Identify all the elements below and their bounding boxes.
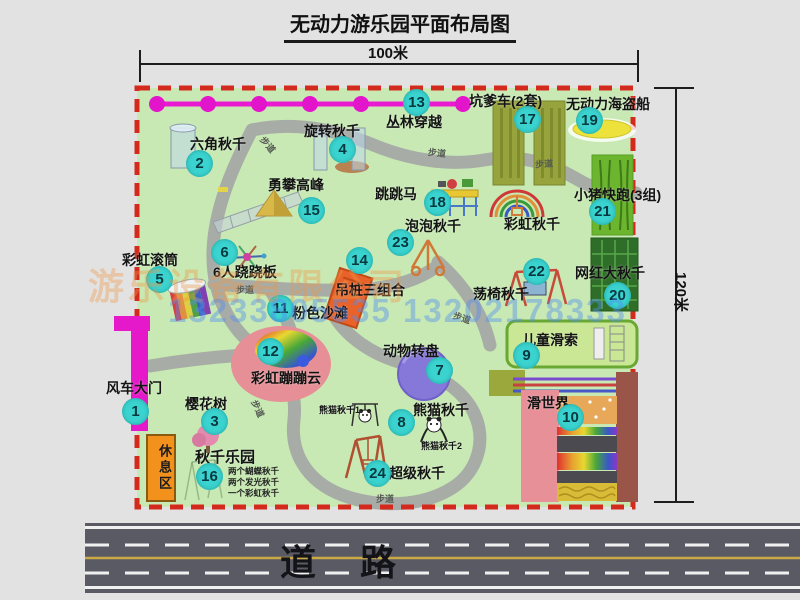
badge-21: 21 [589, 198, 616, 225]
label-rotating-swing: 旋转秋千 [304, 121, 360, 141]
badge-10: 10 [557, 404, 584, 431]
label-rainbow-roller: 彩虹滚筒 [122, 250, 178, 270]
badge-22: 22 [523, 258, 550, 285]
badge-24: 24 [364, 460, 391, 487]
label-windmill-gate: 风车大门 [106, 378, 162, 398]
walkway-label-4: 步道 [236, 283, 254, 296]
swing-park-details: 两个蝴蝶秋千 两个发光秋千 一个彩虹秋千 [228, 466, 279, 499]
road-label: 道路 [280, 534, 440, 586]
label-super-swing: 超级秋千 [389, 463, 445, 483]
label-pink-beach: 粉色沙滩 [292, 303, 348, 323]
badge-8: 8 [388, 409, 415, 436]
road [85, 523, 800, 593]
park-plan-screenshot: 无动力游乐园平面布局图 100米 120米 游乐设备有限公司 132338055… [0, 0, 800, 600]
walkway-label-7: 步道 [376, 492, 394, 505]
badge-16: 16 [196, 463, 223, 490]
badge-23: 23 [387, 229, 414, 256]
swing-park-detail-1: 两个蝴蝶秋千 [228, 466, 279, 477]
badge-13: 13 [403, 89, 430, 116]
badge-2: 2 [186, 150, 213, 177]
badge-20: 20 [604, 282, 631, 309]
label-animal-turntable: 动物转盘 [383, 341, 439, 361]
badge-17: 17 [514, 106, 541, 133]
width-dimension-label: 100米 [368, 42, 408, 63]
badge-1: 1 [122, 398, 149, 425]
label-panda-swing-2: 熊猫秋千2 [421, 439, 462, 452]
badge-19: 19 [576, 107, 603, 134]
pink-beach-icon [231, 326, 331, 402]
badge-3: 3 [201, 408, 228, 435]
badge-11: 11 [267, 295, 294, 322]
badge-12: 12 [257, 338, 284, 365]
badge-5: 5 [146, 266, 173, 293]
rest-area-box: 休息区 [146, 434, 176, 502]
label-jumping-horse: 跳跳马 [375, 184, 417, 204]
badge-6: 6 [211, 239, 238, 266]
badge-14: 14 [346, 247, 373, 274]
badge-7: 7 [426, 357, 453, 384]
label-bubble-swing: 泡泡秋千 [405, 216, 461, 236]
label-climbing-peak: 勇攀高峰 [268, 175, 324, 195]
label-hanging-posts: 吊桩三组合 [335, 280, 405, 300]
label-swing-chair: 荡椅秋千 [473, 284, 529, 304]
page-title: 无动力游乐园平面布局图 [284, 8, 516, 43]
swing-park-detail-3: 一个彩虹秋千 [228, 488, 279, 499]
label-panda-swing-1: 熊猫秋千1 [319, 403, 360, 416]
badge-4: 4 [329, 136, 356, 163]
label-rainbow-arch-swing: 彩虹秋千 [504, 214, 560, 234]
label-big-swing: 网红大秋千 [575, 263, 645, 283]
walkway-label-3: 步道 [535, 156, 554, 170]
badge-9: 9 [513, 342, 540, 369]
walkway-label-2: 步道 [427, 145, 446, 160]
height-dimension-label: 120米 [671, 272, 692, 312]
label-rainbow-cloud: 彩虹蹦蹦云 [251, 368, 321, 388]
label-piggy-run: 小猪快跑(3组) [574, 185, 661, 205]
badge-15: 15 [298, 197, 325, 224]
label-panda-swing: 熊猫秋千 [413, 400, 469, 420]
swing-park-detail-2: 两个发光秋千 [228, 477, 279, 488]
badge-18: 18 [424, 189, 451, 216]
